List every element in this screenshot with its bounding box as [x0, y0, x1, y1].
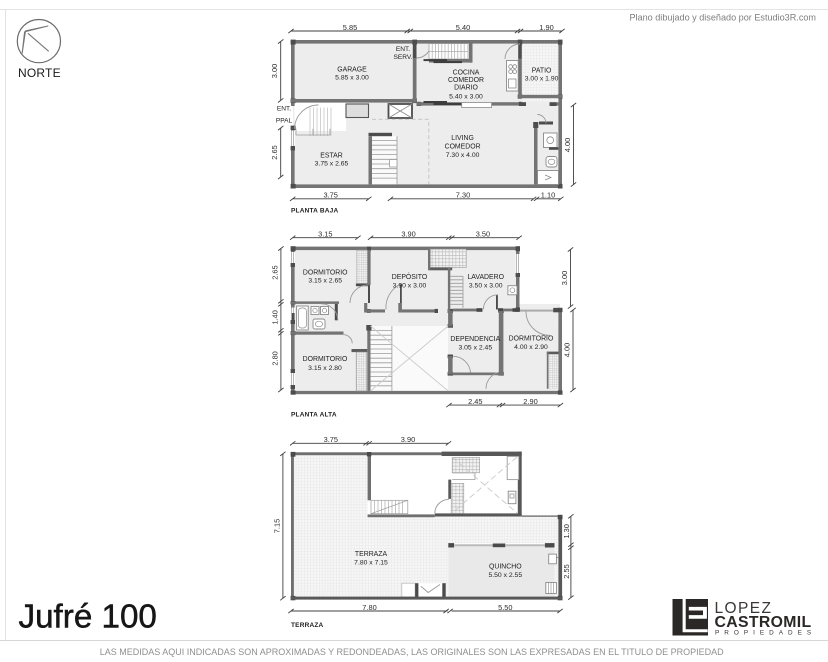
svg-text:3.00: 3.00 [270, 64, 279, 78]
svg-text:LAS MEDIDAS AQUI INDICADAS SON: LAS MEDIDAS AQUI INDICADAS SON APROXIMAD… [100, 647, 724, 657]
svg-text:3.75: 3.75 [324, 435, 338, 444]
svg-text:3.00: 3.00 [560, 271, 569, 285]
svg-text:DORMITORIO: DORMITORIO [303, 269, 348, 276]
svg-text:LAVADERO: LAVADERO [467, 274, 504, 281]
svg-text:3.15: 3.15 [318, 230, 332, 239]
svg-text:3.15 x 2.80: 3.15 x 2.80 [308, 365, 342, 372]
svg-text:TERRAZA: TERRAZA [355, 551, 388, 558]
svg-text:DEPENDENCIA: DEPENDENCIA [450, 336, 500, 343]
svg-text:1.90: 1.90 [539, 23, 553, 32]
svg-text:ENT.: ENT. [396, 46, 410, 53]
svg-text:3.00 x 1.90: 3.00 x 1.90 [525, 76, 559, 83]
svg-text:PLANTA ALTA: PLANTA ALTA [291, 412, 337, 419]
svg-text:2.80: 2.80 [270, 351, 279, 365]
svg-text:QUINCHO: QUINCHO [489, 564, 522, 571]
svg-text:CASTROMIL: CASTROMIL [715, 614, 812, 631]
svg-text:4.00: 4.00 [563, 343, 572, 357]
svg-text:2.65: 2.65 [270, 145, 279, 159]
svg-text:5.85: 5.85 [343, 23, 357, 32]
svg-text:3.50: 3.50 [476, 230, 490, 239]
svg-text:1.30: 1.30 [562, 524, 571, 538]
svg-text:COMEDOR: COMEDOR [445, 144, 481, 151]
svg-text:2.55: 2.55 [562, 564, 571, 578]
svg-text:2.65: 2.65 [270, 265, 279, 279]
svg-text:1.10: 1.10 [541, 191, 555, 200]
svg-text:5.85 x 3.00: 5.85 x 3.00 [335, 74, 369, 81]
svg-text:NORTE: NORTE [18, 66, 61, 80]
svg-text:ENT.: ENT. [277, 106, 291, 113]
svg-text:2.45: 2.45 [468, 397, 482, 406]
svg-text:3.15 x 2.65: 3.15 x 2.65 [308, 277, 342, 284]
svg-text:DORMITORIO: DORMITORIO [303, 356, 348, 363]
svg-text:5.40 x 3.00: 5.40 x 3.00 [449, 93, 483, 100]
svg-text:3.05 x 2.45: 3.05 x 2.45 [458, 344, 492, 351]
svg-text:7.80: 7.80 [362, 603, 376, 612]
svg-text:COCINA: COCINA [453, 70, 480, 77]
svg-text:7.15: 7.15 [272, 519, 281, 533]
svg-text:5.40: 5.40 [456, 23, 470, 32]
svg-text:7.30: 7.30 [456, 191, 470, 200]
svg-text:2.90: 2.90 [523, 397, 537, 406]
svg-text:3.75 x 2.65: 3.75 x 2.65 [315, 161, 349, 168]
svg-text:7.80 x 7.15: 7.80 x 7.15 [354, 560, 388, 567]
svg-text:4.00: 4.00 [563, 138, 572, 152]
svg-text:4.00 x 2.90: 4.00 x 2.90 [514, 344, 548, 351]
svg-text:ESTAR: ESTAR [320, 153, 342, 160]
svg-text:3.90 x 3.00: 3.90 x 3.00 [393, 282, 427, 289]
svg-text:Jufré 100: Jufré 100 [19, 599, 157, 636]
svg-text:3.90: 3.90 [401, 230, 415, 239]
svg-text:TERRAZA: TERRAZA [291, 622, 324, 629]
svg-text:PLANTA BAJA: PLANTA BAJA [291, 208, 338, 215]
svg-text:5.50: 5.50 [498, 603, 512, 612]
svg-text:Plano dibujado y diseñado por: Plano dibujado y diseñado por Estudio3R.… [629, 13, 816, 23]
svg-text:DIARIO: DIARIO [454, 85, 478, 92]
svg-text:3.50 x 3.00: 3.50 x 3.00 [469, 282, 503, 289]
svg-text:1.40: 1.40 [270, 310, 279, 324]
svg-text:3.90: 3.90 [401, 435, 415, 444]
svg-text:SERV.: SERV. [393, 54, 412, 61]
svg-text:5.50 x 2.55: 5.50 x 2.55 [488, 572, 522, 579]
svg-text:LIVING: LIVING [451, 135, 474, 142]
svg-text:PROPIEDADES: PROPIEDADES [715, 630, 816, 637]
svg-text:GARAGE: GARAGE [337, 67, 367, 74]
svg-text:COMEDOR: COMEDOR [448, 77, 484, 84]
svg-text:PPAL: PPAL [276, 118, 293, 125]
svg-text:DEPÓSITO: DEPÓSITO [392, 272, 428, 281]
svg-text:PATIO: PATIO [532, 67, 552, 74]
svg-text:7.30 x 4.00: 7.30 x 4.00 [446, 152, 480, 159]
svg-text:DORMITORIO: DORMITORIO [509, 335, 554, 342]
svg-text:3.75: 3.75 [324, 191, 338, 200]
